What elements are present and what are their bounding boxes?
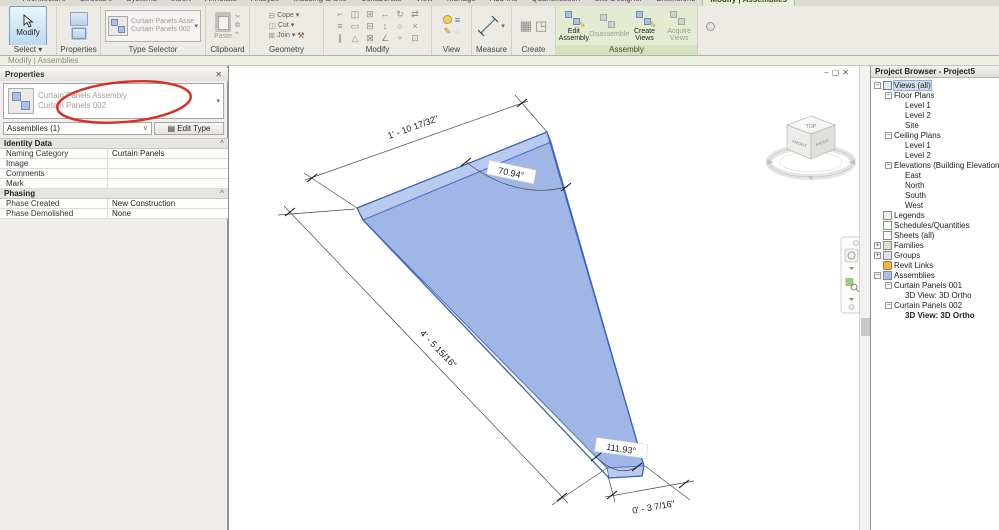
tree-spacer bbox=[896, 122, 903, 129]
tree-spacer bbox=[896, 202, 903, 209]
select-panel-label[interactable]: Select ▾ bbox=[0, 45, 56, 55]
create-views-button[interactable]: ✎Create Views bbox=[629, 10, 661, 42]
tree-spacer bbox=[874, 222, 881, 229]
paste-label: Paste bbox=[214, 33, 232, 40]
match-type-icon[interactable]: ⌁ bbox=[235, 30, 241, 37]
type-selector-text: Curtain Panels Assembly Curtain Panels 0… bbox=[38, 91, 216, 111]
properties-panel-label: Properties bbox=[57, 45, 100, 55]
tree-item-label: Assemblies bbox=[894, 271, 935, 280]
geometry-item-join[interactable]: ⊠Join ▾⚒ bbox=[268, 31, 304, 40]
group-icon[interactable]: ⊟ bbox=[363, 20, 378, 32]
drawing-area[interactable]: 1' - 10 17/32" 4' - 5 15/16" 0' - 3 7/16… bbox=[228, 66, 870, 530]
tree-spacer bbox=[874, 262, 881, 269]
collapse-icon[interactable]: − bbox=[885, 92, 892, 99]
property-value[interactable]: New Construction bbox=[108, 199, 228, 208]
tree-item-label: Level 2 bbox=[905, 151, 931, 160]
dim-bottom-value: 0' - 3 7/16" bbox=[631, 498, 675, 515]
properties-palette-icon[interactable] bbox=[70, 12, 88, 26]
join-line-icon[interactable]: ∥ bbox=[333, 32, 348, 44]
full-nav-wheel-icon bbox=[854, 241, 859, 246]
create-views-icon: ✎ bbox=[635, 10, 655, 27]
property-value[interactable]: None bbox=[108, 209, 228, 218]
thin-lines-icon[interactable]: ✎ bbox=[444, 26, 452, 37]
tree-item-families[interactable]: +Families bbox=[871, 240, 999, 250]
properties-filter-select[interactable]: Assemblies (1) ∨ bbox=[3, 122, 152, 135]
steering-wheel-icon bbox=[845, 249, 858, 262]
tree-item-3d-view-3d-ortho[interactable]: 3D View: 3D Ortho bbox=[871, 290, 999, 300]
sheet-icon bbox=[883, 231, 892, 240]
tree-item-label: East bbox=[905, 171, 921, 180]
modify-panel-label: Modify bbox=[324, 45, 431, 55]
section-name: Identity Data bbox=[4, 139, 52, 148]
tree-item-label: Ceiling Plans bbox=[894, 131, 941, 140]
property-label: Phase Created bbox=[0, 199, 108, 208]
angle-icon[interactable]: ∠ bbox=[378, 32, 393, 44]
create-panel-label: Create bbox=[512, 45, 555, 55]
pin-icon[interactable]: ○ bbox=[393, 20, 408, 32]
tree-spacer bbox=[896, 182, 903, 189]
tree-item-assemblies[interactable]: −Assemblies bbox=[871, 270, 999, 280]
properties-toggle-icon[interactable] bbox=[72, 28, 86, 39]
tree-item-level-2[interactable]: Level 2 bbox=[871, 110, 999, 120]
view-panel-label: View bbox=[432, 45, 471, 55]
viewcube-top-label: TOP bbox=[806, 124, 817, 130]
tree-spacer bbox=[896, 292, 903, 299]
geometry-item-cope[interactable]: ⊟Cope ▾ bbox=[268, 11, 304, 20]
geometry-panel-label: Geometry bbox=[250, 45, 323, 55]
property-label: Phase Demolished bbox=[0, 209, 108, 218]
view-window-controls[interactable]: ‒▢✕ bbox=[824, 68, 852, 77]
property-label: Mark bbox=[0, 179, 108, 188]
tree-item-label: Legends bbox=[894, 211, 925, 220]
project-browser-tree: −Views (all)−Floor PlansLevel 1Level 2Si… bbox=[871, 80, 999, 530]
move-icon[interactable]: ↔ bbox=[378, 8, 393, 20]
type-selector-panel-label: Type Selector bbox=[101, 45, 205, 55]
property-value[interactable] bbox=[108, 159, 228, 168]
tree-spacer bbox=[896, 112, 903, 119]
close-icon: ✕ bbox=[842, 68, 852, 77]
ribbon-panel-assembly: ✎Edit AssemblyDisassemble✎Create ViewsAc… bbox=[556, 6, 698, 55]
join-icon: ⊠ bbox=[268, 31, 275, 40]
tree-spacer bbox=[896, 152, 903, 159]
tree-spacer bbox=[896, 102, 903, 109]
tree-item-label: Level 1 bbox=[905, 141, 931, 150]
tree-item-level-2[interactable]: Level 2 bbox=[871, 150, 999, 160]
region-icon[interactable]: ⊡ bbox=[408, 32, 423, 44]
assembly-type-icon bbox=[108, 16, 128, 36]
viewcube[interactable]: TOP FRONT RIGHT bbox=[767, 116, 855, 180]
ribbon: ArchitectureStructureSystemsInsertAnnota… bbox=[0, 0, 999, 56]
ribbon-panel-type-selector: Curtain Panels Assembly Curtain Panels 0… bbox=[101, 6, 206, 55]
properties-table: Identity Data^Naming CategoryCurtain Pan… bbox=[0, 138, 228, 219]
measure-panel-label: Measure bbox=[472, 45, 511, 55]
dim-top-value: 1' - 10 17/32" bbox=[386, 113, 439, 141]
tree-item-label: Level 2 bbox=[905, 111, 931, 120]
project-browser: Project Browser - Project5 −Views (all)−… bbox=[870, 66, 999, 530]
ribbon-panel-modify: ⌐◫⊞↔↻⇄≡▭⊟↕○×∥△⊠∠÷⊡ Modify bbox=[324, 6, 432, 55]
assembly-panel-label: Assembly bbox=[556, 45, 697, 55]
restore-icon: ▢ bbox=[832, 68, 843, 77]
minimize-icon: ‒ bbox=[824, 68, 831, 77]
ribbon-options-icon[interactable] bbox=[706, 22, 715, 31]
tree-spacer bbox=[896, 172, 903, 179]
collapse-icon[interactable]: − bbox=[885, 162, 892, 169]
geometry-item-label: Cope ▾ bbox=[277, 11, 299, 20]
collapse-icon[interactable]: − bbox=[874, 82, 881, 89]
cut-icon[interactable]: ✂ bbox=[235, 14, 241, 21]
modify-button-label: Modify bbox=[16, 28, 40, 37]
graphics-display-icon[interactable]: ≡ bbox=[455, 15, 460, 25]
lightbulb-icon[interactable] bbox=[443, 15, 452, 24]
tree-item-level-1[interactable]: Level 1 bbox=[871, 140, 999, 150]
tree-item-label: Groups bbox=[894, 251, 920, 260]
ribbon-panel-view: ✎ ≡ ◌ View bbox=[432, 6, 472, 55]
property-row: Comments bbox=[0, 169, 228, 179]
property-label: Naming Category bbox=[0, 149, 108, 158]
split-icon[interactable]: ↕ bbox=[378, 20, 393, 32]
property-row: Mark bbox=[0, 179, 228, 189]
ribbon-filler bbox=[698, 6, 999, 55]
dim-left-value: 4' - 5 15/16" bbox=[418, 328, 459, 369]
property-label: Comments bbox=[0, 169, 108, 178]
property-row: Phase DemolishedNone bbox=[0, 209, 228, 219]
collapse-icon[interactable]: − bbox=[885, 302, 892, 309]
link-icon bbox=[883, 261, 892, 270]
section-header-phasing[interactable]: Phasing^ bbox=[0, 189, 228, 199]
edit-assembly-button[interactable]: ✎Edit Assembly bbox=[558, 10, 590, 42]
tree-item-sheets-all-[interactable]: Sheets (all) bbox=[871, 230, 999, 240]
ribbon-panel-clipboard: Paste ✂ ⧉ ⌁ Clipboard bbox=[206, 6, 250, 55]
tree-item-label: South bbox=[905, 191, 926, 200]
measure-icon[interactable] bbox=[478, 15, 498, 37]
edit-type-icon: ▤ bbox=[167, 124, 175, 133]
chevron-down-icon[interactable]: ▾ bbox=[501, 22, 505, 30]
edit-type-button[interactable]: ▤ Edit Type bbox=[154, 122, 224, 135]
property-value[interactable] bbox=[108, 169, 228, 178]
tree-item-3d-view-3d-ortho[interactable]: 3D View: 3D Ortho bbox=[871, 310, 999, 320]
options-bar-text: Modify | Assemblies bbox=[8, 56, 79, 65]
array-icon[interactable]: ⊞ bbox=[363, 8, 378, 20]
geometry-item-cut[interactable]: ◫Cut ▾ bbox=[268, 21, 304, 30]
clipboard-panel-label: Clipboard bbox=[206, 45, 249, 55]
tree-item-label: Sheets (all) bbox=[894, 231, 934, 240]
chevron-down-icon[interactable]: ▾ bbox=[194, 22, 198, 30]
disassemble-button: Disassemble bbox=[593, 13, 626, 38]
tree-spacer bbox=[874, 212, 881, 219]
tree-item-site[interactable]: Site bbox=[871, 120, 999, 130]
close-icon[interactable]: ✕ bbox=[215, 68, 222, 81]
schedule-icon bbox=[883, 221, 892, 230]
tree-spacer bbox=[896, 312, 903, 319]
type-selector-box[interactable]: Curtain Panels Assembly Curtain Panels 0… bbox=[3, 83, 224, 119]
cursor-arrow-icon bbox=[22, 14, 34, 28]
ribbon-panel-properties: Properties bbox=[57, 6, 101, 55]
tree-item-label: North bbox=[905, 181, 925, 190]
modify-button[interactable]: Modify bbox=[9, 6, 47, 45]
nav-options-icon bbox=[849, 305, 854, 310]
collapse-icon[interactable]: − bbox=[885, 132, 892, 139]
tree-item-label: Level 1 bbox=[905, 101, 931, 110]
property-row: Image bbox=[0, 159, 228, 169]
section-pin-icon[interactable]: ^ bbox=[220, 189, 224, 198]
tree-spacer bbox=[896, 142, 903, 149]
tree-item-floor-plans[interactable]: −Floor Plans bbox=[871, 90, 999, 100]
collapse-icon[interactable]: − bbox=[874, 272, 881, 279]
match-icon[interactable]: ⇄ bbox=[408, 8, 423, 20]
property-row: Naming CategoryCurtain Panels bbox=[0, 149, 228, 159]
property-label: Image bbox=[0, 159, 108, 168]
acquire-views-icon bbox=[669, 10, 689, 27]
tree-item-level-1[interactable]: Level 1 bbox=[871, 100, 999, 110]
scrollbar-thumb[interactable] bbox=[861, 318, 870, 336]
assembly-button-label: Edit Assembly bbox=[558, 28, 590, 42]
cope-icon: ⊟ bbox=[268, 11, 275, 20]
assembly-type-icon bbox=[8, 88, 34, 114]
create-assembly-icon[interactable]: ▦ bbox=[520, 18, 532, 34]
ribbon-panel-select: Modify Select ▾ bbox=[0, 6, 57, 55]
tree-item-label: 3D View: 3D Ortho bbox=[905, 291, 972, 300]
tree-item-label: Floor Plans bbox=[894, 91, 934, 100]
tree-item-label: 3D View: 3D Ortho bbox=[905, 311, 975, 320]
section-name: Phasing bbox=[4, 189, 35, 198]
views-icon bbox=[883, 81, 892, 90]
tree-item-ceiling-plans[interactable]: −Ceiling Plans bbox=[871, 130, 999, 140]
chevron-down-icon[interactable]: ▾ bbox=[216, 97, 220, 105]
tree-item-groups[interactable]: +Groups bbox=[871, 250, 999, 260]
copy-icon[interactable]: ⧉ bbox=[235, 22, 241, 29]
property-value[interactable]: Curtain Panels bbox=[108, 149, 228, 158]
tree-item-curtain-panels-002[interactable]: −Curtain Panels 002 bbox=[871, 300, 999, 310]
assembly-button-label: Acquire Views bbox=[663, 28, 695, 42]
disassemble-icon bbox=[599, 13, 619, 30]
acquire-views-button: Acquire Views bbox=[663, 10, 695, 42]
section-pin-icon[interactable]: ^ bbox=[220, 139, 224, 148]
group-icon bbox=[883, 251, 892, 260]
assembly-button-label: Create Views bbox=[629, 28, 661, 42]
scale-icon[interactable]: ▭ bbox=[348, 20, 363, 32]
expand-icon[interactable]: + bbox=[874, 242, 881, 249]
geometry-item-label: Cut ▾ bbox=[278, 21, 294, 30]
filter-value: Assemblies (1) bbox=[7, 123, 143, 134]
hide-icon[interactable]: ◌ bbox=[455, 27, 460, 36]
property-row: Phase CreatedNew Construction bbox=[0, 199, 228, 209]
family-icon bbox=[883, 241, 892, 250]
unjoin-icon[interactable]: ⊠ bbox=[363, 32, 378, 44]
properties-palette: Properties ✕ Curtain Panels Assembly Cur… bbox=[0, 66, 228, 530]
tree-item-elevations-building-elevation-[interactable]: −Elevations (Building Elevation) bbox=[871, 160, 999, 170]
mirror-icon[interactable]: ◫ bbox=[348, 8, 363, 20]
create-parts-icon[interactable]: ◳ bbox=[535, 18, 547, 34]
cut-icon: ◫ bbox=[268, 21, 276, 30]
tree-item-label: Revit Links bbox=[894, 261, 933, 270]
assembly-button-label: Disassemble bbox=[589, 31, 629, 38]
expand-icon[interactable]: + bbox=[874, 252, 881, 259]
section-header-identity-data[interactable]: Identity Data^ bbox=[0, 139, 228, 149]
project-browser-title[interactable]: Project Browser - Project5 bbox=[871, 66, 999, 78]
collapse-icon[interactable]: − bbox=[885, 282, 892, 289]
tree-item-east[interactable]: East bbox=[871, 170, 999, 180]
tree-item-views-all-[interactable]: −Views (all) bbox=[871, 80, 999, 90]
options-bar: Modify | Assemblies bbox=[0, 56, 999, 66]
chevron-down-icon: ∨ bbox=[143, 123, 148, 134]
tree-item-revit-links[interactable]: Revit Links bbox=[871, 260, 999, 270]
type-selector-text: Curtain Panels Assembly Curtain Panels 0… bbox=[128, 18, 194, 34]
tree-item-label: Elevations (Building Elevation) bbox=[894, 161, 999, 170]
properties-header[interactable]: Properties bbox=[0, 68, 228, 81]
tree-item-legends[interactable]: Legends bbox=[871, 210, 999, 220]
edit-assembly-icon: ✎ bbox=[564, 10, 584, 27]
ribbon-type-selector[interactable]: Curtain Panels Assembly Curtain Panels 0… bbox=[105, 10, 201, 42]
ribbon-panel-measure: ▾ Measure bbox=[472, 6, 512, 55]
tree-item-label: Curtain Panels 001 bbox=[894, 281, 962, 290]
ribbon-panel-geometry: ⊟Cope ▾◫Cut ▾⊠Join ▾⚒ Geometry bbox=[250, 6, 324, 55]
tree-item-label: Schedules/Quantities bbox=[894, 221, 970, 230]
align-icon[interactable]: ⌐ bbox=[333, 8, 348, 20]
curtain-panel-3d[interactable] bbox=[357, 132, 644, 478]
demolish-hammer-icon[interactable]: ⚒ bbox=[297, 31, 304, 40]
assembly-icon bbox=[883, 271, 892, 280]
tree-item-label: Curtain Panels 002 bbox=[894, 301, 962, 310]
ribbon-panel-create: ▦ ◳ Create bbox=[512, 6, 556, 55]
delete-icon[interactable]: × bbox=[408, 20, 423, 32]
tree-spacer bbox=[874, 232, 881, 239]
tree-item-south[interactable]: South bbox=[871, 190, 999, 200]
vertical-scrollbar[interactable] bbox=[859, 66, 870, 530]
divide-icon[interactable]: ÷ bbox=[393, 32, 408, 44]
tree-item-label: Views (all) bbox=[894, 81, 931, 90]
tree-item-label: West bbox=[905, 201, 923, 210]
legend-icon bbox=[883, 211, 892, 220]
paste-icon[interactable] bbox=[215, 12, 231, 32]
rotate-icon[interactable]: ↻ bbox=[393, 8, 408, 20]
tree-spacer bbox=[896, 192, 903, 199]
tree-item-north[interactable]: North bbox=[871, 180, 999, 190]
tree-item-label: Site bbox=[905, 121, 919, 130]
trim-icon[interactable]: △ bbox=[348, 32, 363, 44]
geometry-item-label: Join ▾ bbox=[277, 31, 295, 40]
offset-icon[interactable]: ≡ bbox=[333, 20, 348, 32]
tree-item-curtain-panels-001[interactable]: −Curtain Panels 001 bbox=[871, 280, 999, 290]
tree-item-label: Families bbox=[894, 241, 924, 250]
property-value[interactable] bbox=[108, 179, 228, 188]
tree-item-schedules-quantities[interactable]: Schedules/Quantities bbox=[871, 220, 999, 230]
tree-item-west[interactable]: West bbox=[871, 200, 999, 210]
